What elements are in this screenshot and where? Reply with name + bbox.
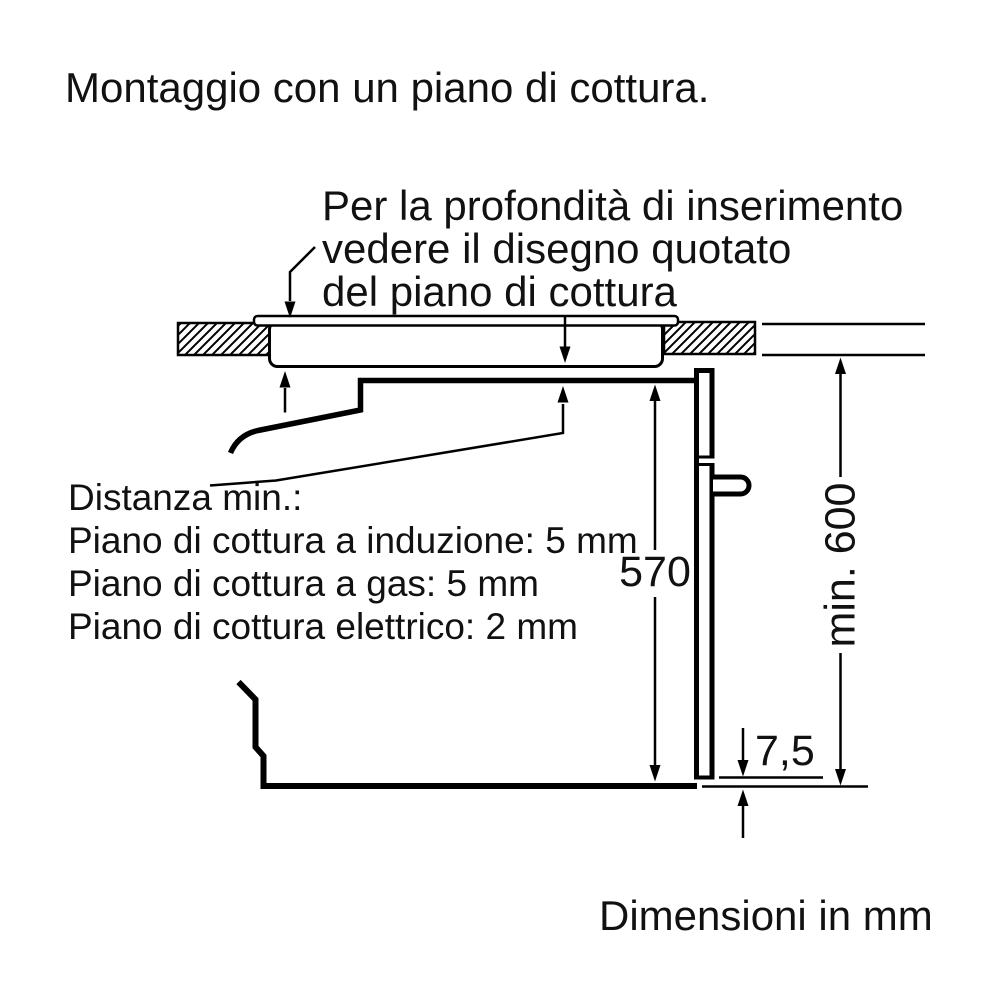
cooktop-glass-top [254, 316, 678, 326]
min-distance-heading: Distanza min.: [68, 476, 638, 519]
distanza-leader [210, 386, 569, 486]
min-distance-electric: Piano di cottura elettrico: 2 mm [68, 605, 638, 648]
countertop-left-section [178, 323, 270, 355]
oven-door [694, 368, 749, 778]
countertop-right-section [664, 322, 925, 355]
dimension-label-min-600: min. 600 [820, 483, 863, 648]
cooktop-tub [270, 322, 663, 367]
insertion-depth-note-line1: Per la profondità di inserimento [322, 184, 903, 227]
insertion-depth-note-line2: vedere il disegno quotato [322, 227, 903, 270]
oven-top-profile [231, 381, 699, 454]
insertion-depth-note-line3: del piano di cottura [322, 270, 903, 313]
annotation-leader [285, 247, 316, 318]
insertion-depth-note: Per la profondità di inserimento vedere … [322, 184, 903, 313]
dimension-label-570: 570 [613, 551, 697, 594]
page-title: Montaggio con un piano di cottura. [65, 67, 709, 109]
oven-bottom-profile [239, 682, 698, 786]
installation-diagram-page: Montaggio con un piano di cottura. Per l… [0, 0, 1000, 1000]
dimension-label-7-5: 7,5 [755, 730, 815, 773]
countertop-surface-lines [762, 324, 925, 355]
min-distance-induction: Piano di cottura a induzione: 5 mm [68, 519, 638, 562]
cooktop-clearance-arrow [280, 371, 291, 413]
min-distance-gas: Piano di cottura a gas: 5 mm [68, 562, 638, 605]
cooktop [254, 316, 678, 367]
units-note: Dimensioni in mm [599, 895, 933, 937]
min-distance-list: Distanza min.: Piano di cottura a induzi… [68, 476, 638, 648]
door-handle [713, 477, 749, 494]
